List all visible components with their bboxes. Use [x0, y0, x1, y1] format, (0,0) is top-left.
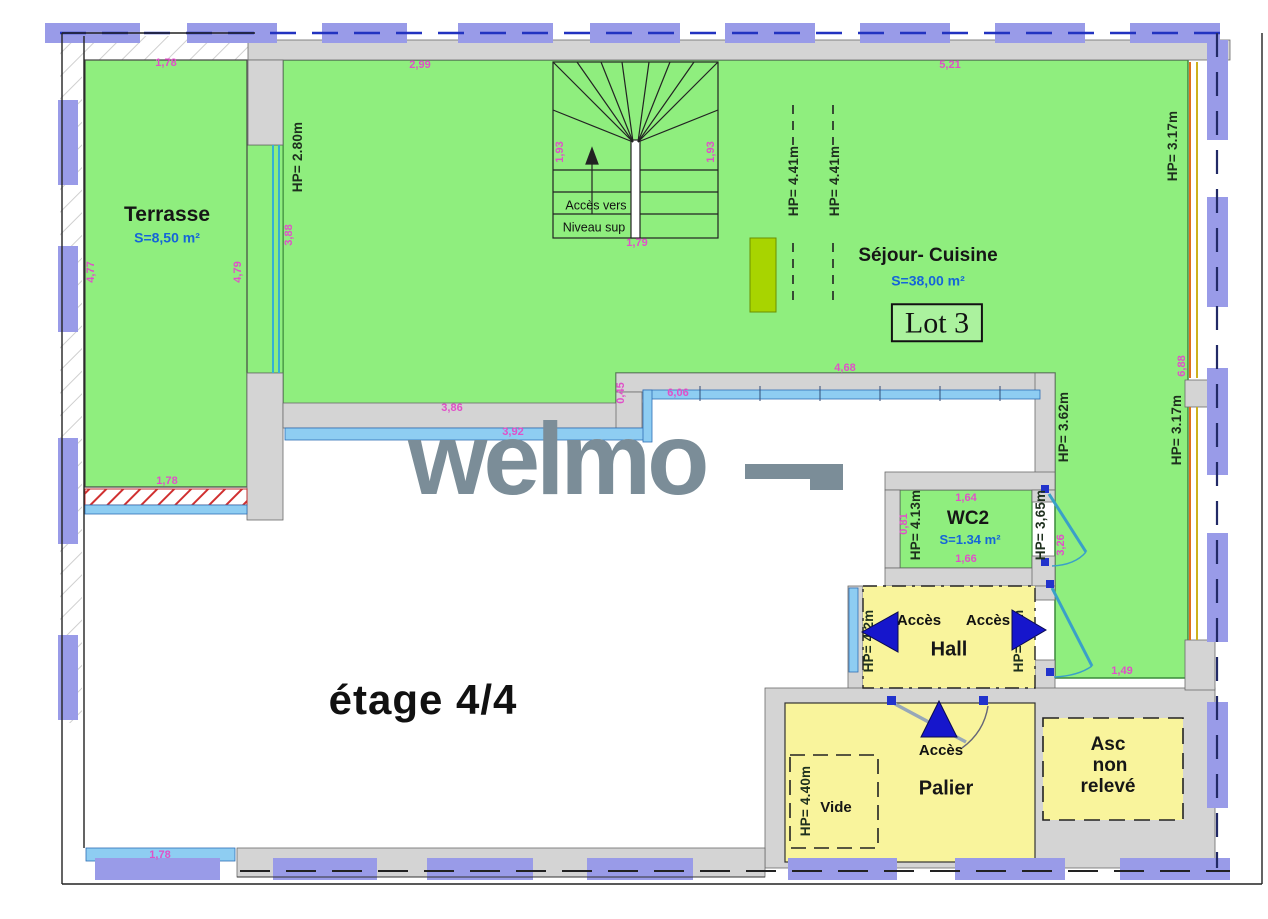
room-name-wc2: WC2 [947, 509, 989, 529]
welmo-watermark: welmo [408, 408, 705, 510]
room-name-hall: Hall [931, 640, 968, 661]
room-name-asc-line2: non [1093, 756, 1128, 776]
labels-layer: 1,782,995,214,774,793,881,931,931,791,78… [0, 0, 1268, 919]
dimension-label: 6,88 [1177, 355, 1189, 376]
room-name-terrasse: Terrasse [124, 204, 210, 226]
room-area-terrasse: S=8,50 m² [134, 231, 200, 246]
dimension-label: 1,78 [156, 476, 177, 488]
dimension-label: 4,68 [834, 363, 855, 375]
ceiling-height-label: HP= 2.80m [291, 122, 305, 192]
floor-level-label: étage 4/4 [329, 678, 518, 722]
room-area-sejour: S=38,00 m² [891, 274, 965, 289]
room-name-asc-line1: Asc [1091, 735, 1126, 755]
dimension-label: 3,26 [1056, 534, 1068, 555]
room-name-sejour: Séjour- Cuisine [858, 246, 997, 266]
dimension-label: 1,64 [955, 493, 976, 505]
dimension-label: 5,21 [939, 60, 960, 72]
room-area-wc2: S=1.34 m² [939, 533, 1000, 547]
ceiling-height-label: HP= 3.17m [1166, 111, 1180, 181]
dimension-label: 4,79 [233, 261, 245, 282]
dimension-label: 1,78 [155, 58, 176, 70]
ceiling-height-label: HP= 3.62m [1057, 392, 1071, 462]
ceiling-height-label: HP= 3.17m [1170, 395, 1184, 465]
lot-badge: Lot 3 [891, 303, 983, 342]
dimension-label: 1,93 [555, 141, 567, 162]
dimension-label: 6,06 [667, 388, 688, 400]
ceiling-height-label: HP= 4.2m [862, 610, 876, 673]
dimension-label: 1,66 [955, 554, 976, 566]
ceiling-height-label: HP= 4.13m [909, 490, 923, 560]
stairs-label-line2: Niveau sup [563, 221, 626, 234]
room-name-palier: Palier [919, 779, 973, 800]
palier-access-label: Accès [919, 743, 963, 759]
dimension-label: 1,78 [149, 850, 170, 862]
dimension-label: 1,93 [706, 141, 718, 162]
dimension-label: 3,88 [284, 224, 296, 245]
dimension-label: 4,77 [86, 261, 98, 282]
room-name-asc-line3: relevé [1081, 777, 1136, 797]
dimension-label: 0,45 [616, 382, 628, 403]
hall-access-right-label: Accès [966, 613, 1010, 629]
lot-badge-wrap: Lot 3 [891, 307, 983, 339]
ceiling-height-label: HP= 3.6m [1012, 610, 1026, 673]
ceiling-height-label: HP= 4.41m [828, 146, 842, 216]
stairs-label-line1: Accès vers [565, 199, 626, 212]
floor-plan: 1,782,995,214,774,793,881,931,931,791,78… [0, 0, 1268, 919]
room-name-vide: Vide [820, 800, 851, 816]
ceiling-height-label: HP= 4.40m [799, 766, 813, 836]
dimension-label: 1,49 [1111, 666, 1132, 678]
hall-access-left-label: Accès [897, 613, 941, 629]
ceiling-height-label: HP= 3,65m [1034, 490, 1048, 560]
ceiling-height-label: HP= 4.41m [787, 146, 801, 216]
dimension-label: 2,99 [409, 60, 430, 72]
dimension-label: 1,79 [626, 238, 647, 250]
